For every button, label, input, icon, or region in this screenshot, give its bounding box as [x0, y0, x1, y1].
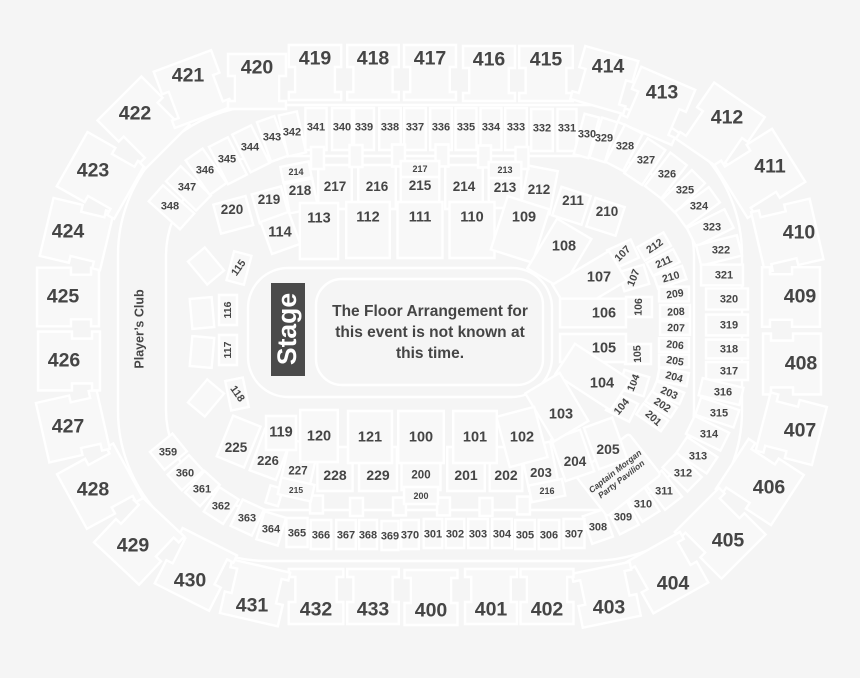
svg-text:211: 211: [562, 193, 584, 208]
svg-text:365: 365: [288, 527, 306, 539]
svg-text:101: 101: [463, 429, 487, 445]
svg-text:341: 341: [307, 121, 325, 133]
svg-text:426: 426: [48, 350, 81, 372]
svg-text:105: 105: [631, 345, 644, 363]
svg-text:200: 200: [411, 470, 430, 482]
svg-text:305: 305: [516, 529, 534, 541]
svg-text:346: 346: [196, 164, 214, 176]
svg-text:327: 327: [637, 154, 655, 166]
svg-text:119: 119: [269, 424, 292, 440]
svg-text:106: 106: [632, 298, 645, 316]
svg-text:334: 334: [482, 121, 501, 133]
svg-text:203: 203: [530, 465, 552, 480]
svg-text:229: 229: [366, 467, 390, 483]
svg-text:329: 329: [595, 132, 613, 144]
svg-text:102: 102: [510, 429, 534, 445]
svg-text:204: 204: [564, 454, 587, 469]
svg-text:343: 343: [263, 131, 281, 143]
svg-text:425: 425: [47, 286, 80, 308]
svg-text:307: 307: [565, 528, 583, 540]
svg-text:345: 345: [218, 153, 236, 165]
svg-text:225: 225: [225, 440, 248, 455]
svg-text:317: 317: [720, 365, 738, 377]
svg-text:106: 106: [592, 305, 616, 321]
svg-text:423: 423: [77, 160, 110, 182]
svg-text:306: 306: [540, 529, 558, 541]
svg-text:103: 103: [549, 406, 573, 422]
svg-text:337: 337: [406, 121, 424, 133]
svg-text:335: 335: [457, 121, 475, 133]
svg-text:217: 217: [412, 164, 427, 174]
svg-text:408: 408: [785, 353, 818, 375]
svg-text:336: 336: [432, 121, 450, 133]
svg-text:407: 407: [784, 420, 817, 442]
svg-text:326: 326: [658, 168, 676, 180]
svg-text:411: 411: [754, 156, 786, 178]
svg-text:114: 114: [268, 224, 291, 240]
svg-text:Player’s Club: Player’s Club: [132, 289, 146, 369]
svg-text:214: 214: [453, 179, 476, 194]
svg-text:431: 431: [236, 595, 269, 617]
svg-text:301: 301: [424, 528, 442, 540]
svg-text:324: 324: [690, 200, 709, 212]
svg-text:340: 340: [333, 121, 351, 133]
svg-text:202: 202: [494, 467, 518, 483]
svg-text:110: 110: [460, 209, 483, 225]
svg-text:366: 366: [312, 529, 330, 541]
svg-text:205: 205: [596, 441, 620, 457]
svg-text:this time.: this time.: [396, 345, 464, 362]
svg-text:304: 304: [493, 528, 512, 540]
svg-text:338: 338: [381, 121, 399, 133]
svg-text:105: 105: [592, 340, 616, 356]
svg-text:215: 215: [409, 178, 432, 193]
svg-text:331: 331: [558, 122, 576, 134]
svg-text:113: 113: [307, 210, 330, 226]
svg-text:418: 418: [357, 48, 390, 70]
svg-text:370: 370: [401, 529, 419, 541]
svg-text:328: 328: [616, 140, 634, 152]
svg-text:108: 108: [552, 238, 576, 254]
svg-text:433: 433: [357, 599, 390, 621]
svg-text:359: 359: [159, 446, 177, 458]
svg-text:347: 347: [178, 181, 196, 193]
svg-text:319: 319: [720, 319, 738, 331]
svg-text:403: 403: [593, 597, 626, 619]
svg-text:219: 219: [258, 192, 281, 207]
svg-text:367: 367: [337, 529, 355, 541]
svg-text:432: 432: [300, 599, 333, 621]
svg-text:209: 209: [665, 287, 684, 301]
svg-text:213: 213: [494, 180, 517, 195]
svg-text:361: 361: [193, 483, 211, 495]
svg-text:320: 320: [720, 293, 738, 305]
svg-text:this event is not known at: this event is not known at: [335, 324, 524, 341]
svg-text:111: 111: [409, 209, 432, 225]
svg-text:210: 210: [596, 204, 619, 219]
svg-text:400: 400: [415, 600, 448, 622]
svg-text:368: 368: [359, 529, 377, 541]
svg-text:104: 104: [590, 375, 614, 391]
svg-text:226: 226: [257, 453, 279, 468]
svg-text:405: 405: [712, 530, 745, 552]
svg-text:303: 303: [469, 528, 487, 540]
svg-text:420: 420: [241, 57, 274, 79]
svg-text:364: 364: [262, 523, 281, 535]
svg-text:413: 413: [646, 82, 679, 104]
svg-text:409: 409: [784, 286, 817, 308]
svg-text:312: 312: [674, 467, 692, 479]
svg-text:322: 322: [712, 244, 730, 256]
svg-text:321: 321: [715, 269, 733, 281]
svg-text:430: 430: [174, 570, 207, 592]
svg-text:330: 330: [578, 128, 596, 140]
svg-text:Stage: Stage: [272, 293, 302, 365]
svg-text:417: 417: [414, 48, 447, 70]
svg-text:318: 318: [720, 343, 738, 355]
svg-text:121: 121: [358, 429, 382, 445]
svg-text:214: 214: [288, 167, 303, 177]
svg-text:410: 410: [783, 222, 816, 244]
svg-text:112: 112: [356, 209, 379, 225]
svg-text:100: 100: [409, 429, 433, 445]
svg-text:348: 348: [161, 200, 179, 212]
svg-text:120: 120: [307, 428, 331, 444]
svg-text:116: 116: [222, 301, 234, 318]
svg-text:310: 310: [634, 498, 652, 510]
svg-text:The Floor Arrangement for: The Floor Arrangement for: [332, 303, 528, 320]
svg-text:424: 424: [52, 221, 85, 243]
svg-text:208: 208: [667, 306, 685, 319]
svg-text:212: 212: [528, 182, 551, 197]
svg-text:313: 313: [689, 450, 707, 462]
svg-text:421: 421: [172, 65, 205, 87]
svg-text:213: 213: [497, 165, 512, 175]
svg-text:419: 419: [299, 48, 332, 70]
svg-text:342: 342: [283, 126, 301, 138]
svg-text:217: 217: [324, 179, 347, 194]
svg-text:316: 316: [714, 386, 732, 398]
svg-text:308: 308: [589, 521, 607, 533]
svg-text:216: 216: [539, 486, 554, 496]
svg-text:309: 309: [614, 511, 632, 523]
svg-text:107: 107: [587, 269, 611, 285]
svg-text:323: 323: [703, 221, 721, 233]
svg-text:207: 207: [667, 322, 685, 335]
svg-text:206: 206: [666, 338, 685, 352]
svg-text:415: 415: [530, 49, 563, 71]
svg-text:218: 218: [289, 183, 312, 198]
svg-text:414: 414: [592, 56, 625, 78]
svg-text:314: 314: [700, 428, 719, 440]
svg-text:200: 200: [413, 491, 428, 501]
svg-text:412: 412: [711, 107, 744, 129]
svg-text:427: 427: [52, 416, 85, 438]
svg-text:401: 401: [475, 599, 508, 621]
svg-text:362: 362: [212, 500, 230, 512]
svg-text:332: 332: [533, 122, 551, 134]
svg-text:227: 227: [288, 466, 307, 478]
svg-text:325: 325: [676, 184, 694, 196]
svg-text:369: 369: [381, 530, 399, 542]
svg-text:315: 315: [710, 407, 728, 419]
svg-text:404: 404: [657, 573, 690, 595]
svg-text:428: 428: [77, 479, 110, 501]
svg-text:201: 201: [454, 467, 478, 483]
svg-text:429: 429: [117, 535, 150, 557]
svg-text:302: 302: [446, 528, 464, 540]
svg-text:344: 344: [241, 141, 260, 153]
svg-text:220: 220: [221, 202, 244, 217]
svg-text:360: 360: [176, 467, 194, 479]
svg-text:311: 311: [655, 485, 673, 497]
svg-text:109: 109: [512, 209, 536, 225]
svg-text:363: 363: [238, 512, 256, 524]
svg-text:339: 339: [355, 121, 373, 133]
svg-text:228: 228: [323, 467, 347, 483]
svg-text:215: 215: [289, 485, 303, 495]
svg-text:416: 416: [473, 49, 506, 71]
svg-text:216: 216: [366, 179, 389, 194]
svg-text:333: 333: [507, 121, 525, 133]
svg-text:422: 422: [119, 103, 152, 125]
svg-text:402: 402: [531, 599, 564, 621]
svg-text:117: 117: [222, 341, 234, 358]
svg-text:406: 406: [753, 477, 786, 499]
